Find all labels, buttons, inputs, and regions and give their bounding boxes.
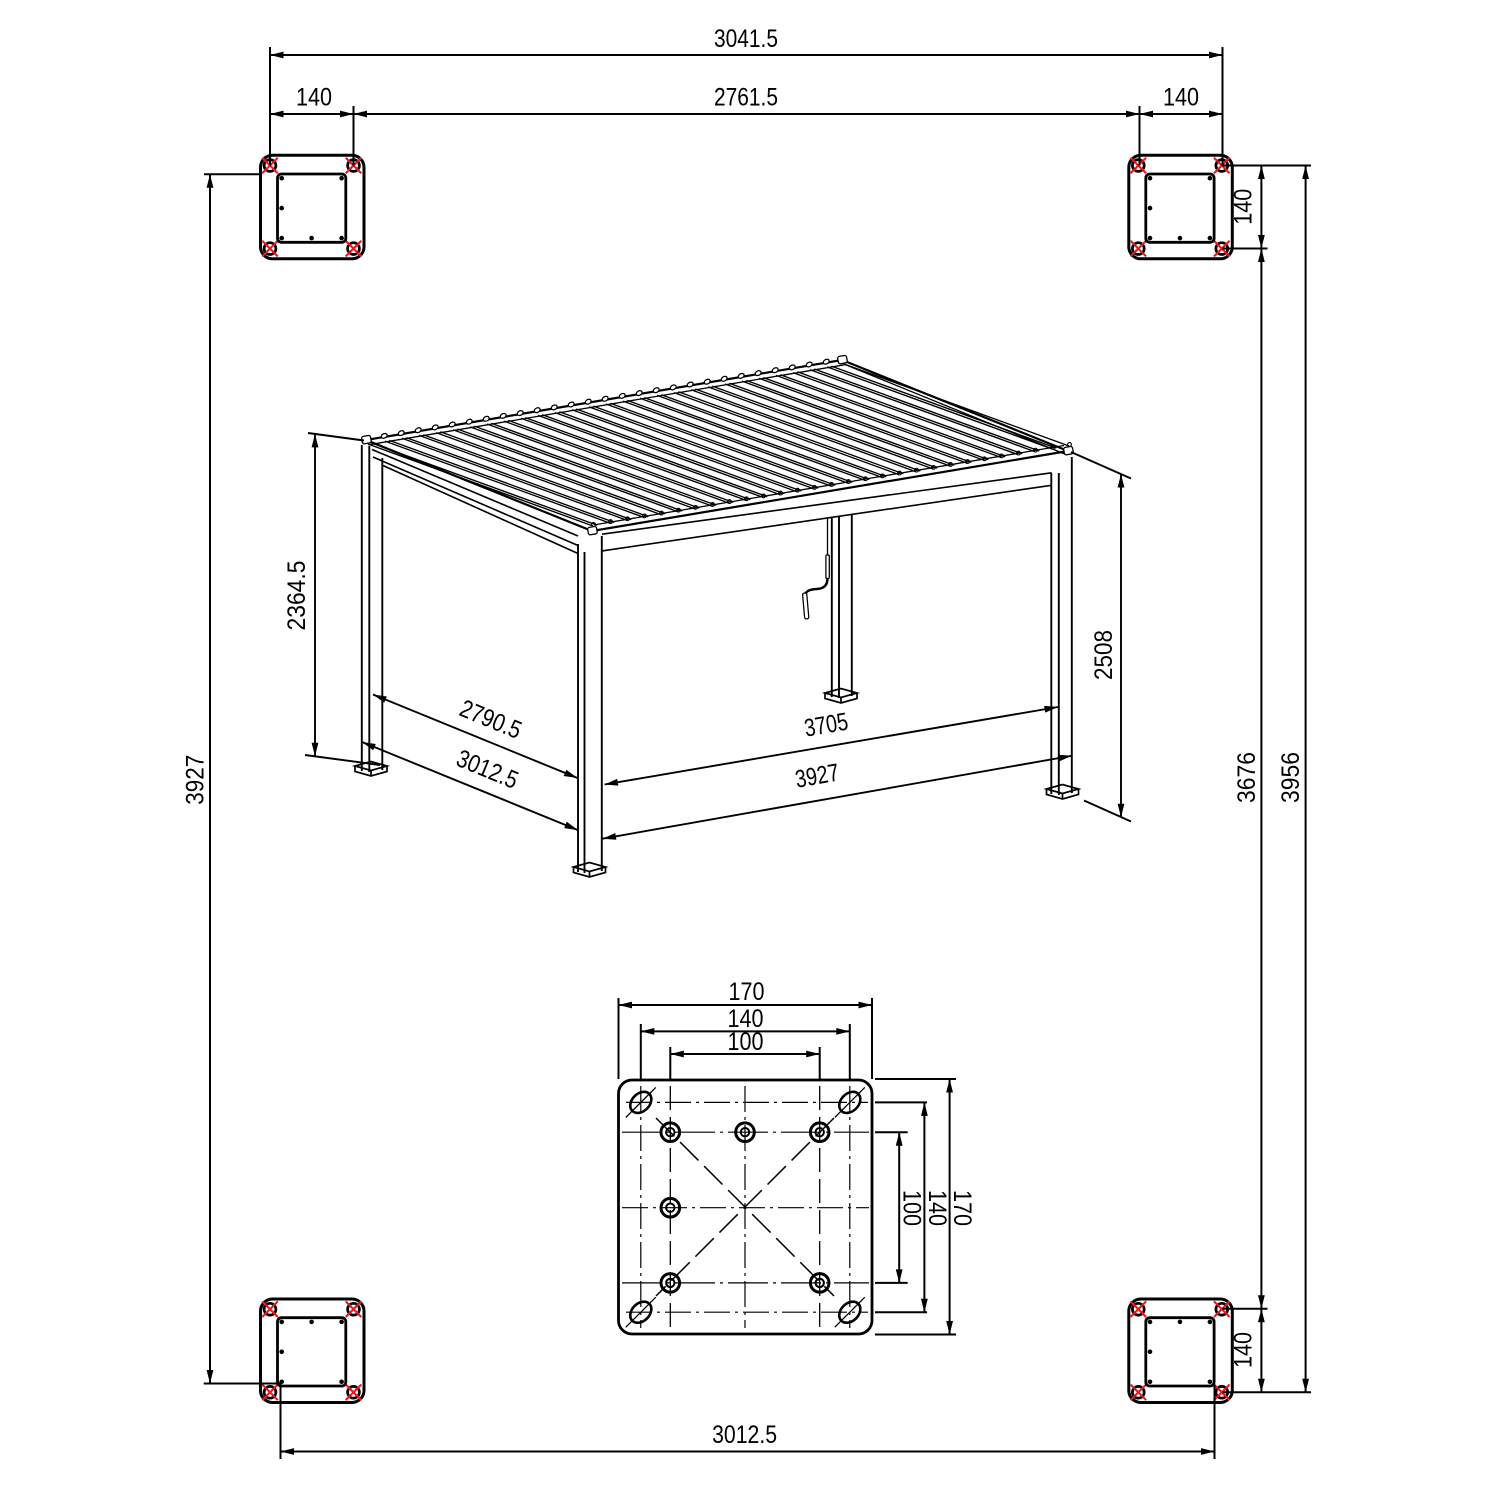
svg-text:3012.5: 3012.5 (712, 1421, 777, 1449)
svg-text:100: 100 (728, 1028, 764, 1056)
svg-text:2761.5: 2761.5 (714, 84, 778, 112)
svg-text:100: 100 (897, 1190, 925, 1226)
svg-text:140: 140 (923, 1190, 951, 1226)
svg-text:3927: 3927 (182, 755, 210, 805)
svg-text:2364.5: 2364.5 (283, 561, 311, 631)
svg-text:170: 170 (729, 978, 765, 1006)
svg-text:3927: 3927 (793, 759, 841, 794)
svg-text:2508: 2508 (1090, 630, 1118, 680)
svg-text:140: 140 (1230, 1332, 1258, 1368)
svg-text:170: 170 (948, 1190, 976, 1226)
svg-text:140: 140 (1163, 84, 1199, 112)
svg-text:140: 140 (296, 84, 332, 112)
svg-text:3041.5: 3041.5 (714, 25, 778, 53)
svg-text:140: 140 (1230, 189, 1258, 225)
svg-text:3956: 3956 (1277, 752, 1305, 803)
svg-text:3676: 3676 (1233, 752, 1261, 803)
svg-text:2790.5: 2790.5 (456, 694, 526, 744)
svg-text:3705: 3705 (802, 708, 850, 743)
